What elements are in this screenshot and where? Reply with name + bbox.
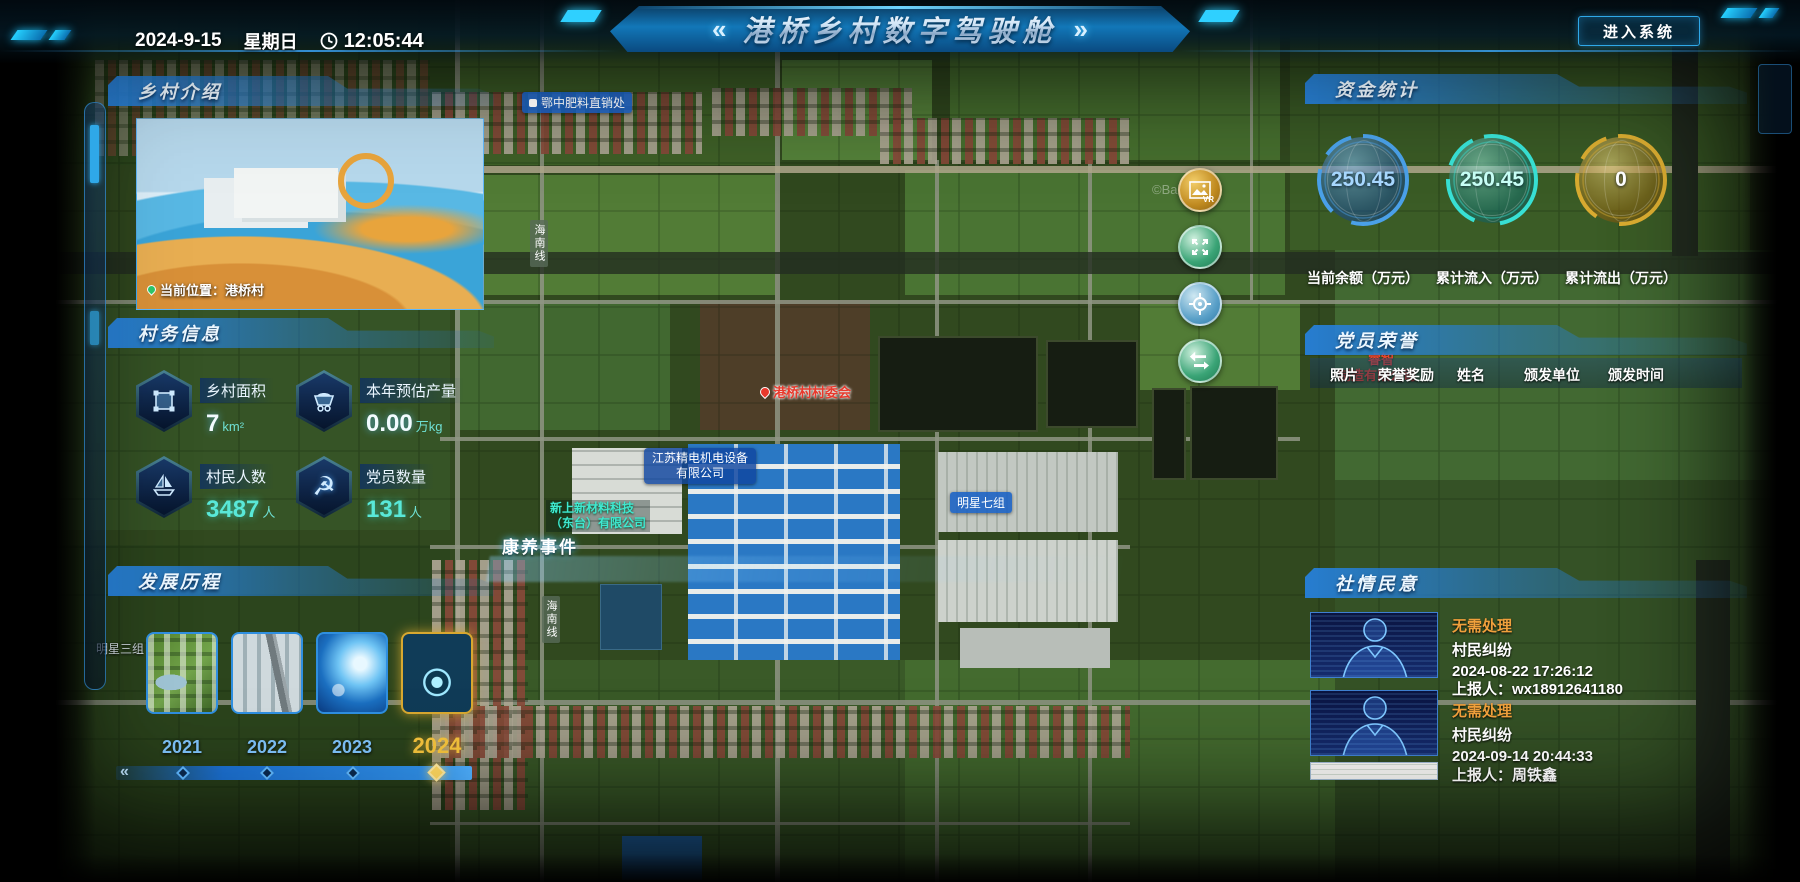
gauge-current-balance: 250.45 [1315, 132, 1411, 228]
event-type: 村民纠纷 [1452, 724, 1742, 745]
sentiment-thumb-3-partial[interactable] [1310, 762, 1438, 780]
banner-line-right [1180, 50, 1800, 52]
timeline-diamond[interactable] [260, 766, 274, 780]
date-text: 2024-9-15 [135, 30, 222, 52]
gauge-label-outflow: 累计流出（万元） [1556, 268, 1686, 288]
map-tag-fertilizer[interactable]: 鄂中肥料直销处 [522, 92, 632, 113]
honors-table-header: 照片 荣誉奖励 姓名 颁发单位 颁发时间 [1310, 358, 1742, 388]
map-tag-group7[interactable]: 明星七组 [950, 492, 1012, 513]
map-tag-company-jiangsu[interactable]: 江苏精电机电设备 有限公司 [644, 448, 756, 484]
sentiment-item-2[interactable]: 无需处理 村民纠纷 2024-09-14 20:44:33 [1452, 700, 1742, 768]
honors-col-award: 荣誉奖励 [1378, 365, 1434, 385]
locate-button[interactable] [1178, 282, 1222, 326]
stat-value: 3487 [206, 496, 259, 523]
stat-label: 村民人数 [200, 464, 274, 489]
corner-slash-icon [48, 30, 71, 40]
datetime-bar: 2024-9-15 星期日 12:05:44 [135, 28, 424, 54]
stat-label: 乡村面积 [200, 378, 274, 403]
stat-unit: km² [222, 419, 244, 434]
cart-icon [296, 370, 352, 432]
gauge-label-inflow: 累计流入（万元） [1427, 268, 1557, 288]
company-name-line: 新上新材料科技 [550, 501, 646, 516]
scanline-overlay [1311, 691, 1437, 755]
vr-label: VR [1203, 195, 1214, 204]
page-title: 港桥乡村数字驾驶舱 [742, 8, 1057, 50]
photo-arch [338, 153, 394, 209]
party-emblem-icon: ☭ [296, 456, 352, 518]
timeline-diamond[interactable] [176, 766, 190, 780]
stat-village-area: 乡村面积 7km² [136, 366, 306, 454]
chevron-right-icon: » [1074, 14, 1088, 45]
honors-col-date: 颁发时间 [1608, 365, 1664, 385]
right-tech-decoration [1758, 64, 1792, 134]
stat-value: 131 [366, 496, 406, 523]
gauge-value: 250.45 [1444, 132, 1540, 228]
stat-value: 7 [206, 410, 219, 437]
dashboard: 鄂中肥料直销处 港桥村村委会 江苏精电机电设备 有限公司 新上新材料科技 （东台… [0, 0, 1800, 882]
enter-system-button[interactable]: 进入系统 [1578, 16, 1700, 46]
scanline-overlay [1311, 613, 1437, 677]
photo-caption: 当前位置：港桥村 [147, 280, 264, 299]
corner-slash-icon [10, 30, 47, 40]
sentiment-thumb-2[interactable] [1310, 690, 1438, 756]
honors-col-photo: 照片 [1330, 365, 1358, 385]
stat-villager-count: 村民人数 3487人 [136, 452, 306, 540]
corner-slash-icon [1720, 8, 1757, 18]
banner-accent-left [560, 10, 601, 22]
swap-arrows-icon [1188, 351, 1212, 371]
vr-image-button[interactable]: VR [1178, 168, 1222, 212]
map-road-label: 海南线 [542, 596, 560, 643]
stat-estimated-output: 本年预估产量 0.00万kg [296, 366, 466, 454]
banner-accent-right [1198, 10, 1239, 22]
stat-unit: 人 [262, 505, 275, 520]
development-thumb-2021[interactable] [146, 632, 218, 714]
map-controls: VR [1178, 168, 1222, 383]
location-pin-icon [145, 283, 158, 296]
sentiment-thumb-1[interactable] [1310, 612, 1438, 678]
map-road-label: 海南线 [530, 220, 548, 267]
red-pin-icon [758, 385, 772, 399]
event-beam [486, 556, 1130, 582]
clock-icon [320, 32, 338, 50]
fullscreen-button[interactable] [1178, 225, 1222, 269]
weekday-text: 星期日 [244, 28, 298, 54]
time-text: 12:05:44 [344, 30, 424, 53]
reporter-2: 上报人：周铁鑫 [1452, 764, 1557, 785]
locate-icon [1188, 292, 1212, 316]
reporter-1: 上报人：wx18912641180 [1452, 678, 1623, 699]
stat-label: 党员数量 [360, 464, 434, 489]
company-name-line: （东台）有限公司 [550, 516, 646, 531]
sentiment-item-1[interactable]: 无需处理 村民纠纷 2024-08-22 17:26:12 [1452, 615, 1742, 683]
company-name-line: 江苏精电机电设备 [652, 451, 748, 466]
stat-unit: 万kg [416, 419, 443, 434]
company-name-line: 有限公司 [652, 466, 748, 481]
timeline-diamond-selected[interactable] [427, 763, 445, 781]
status-badge: 无需处理 [1452, 615, 1742, 636]
gauge-total-outflow: 0 [1573, 132, 1669, 228]
stat-value: 0.00 [366, 410, 413, 437]
year-2023[interactable]: 2023 [316, 737, 388, 758]
event-time: 2024-09-14 20:44:33 [1452, 748, 1742, 765]
expand-icon [1189, 236, 1211, 258]
map-tag-label: 明星七组 [957, 496, 1005, 510]
stat-party-member-count: ☭ 党员数量 131人 [296, 452, 466, 540]
timeline-diamond[interactable] [346, 766, 360, 780]
area-icon [136, 370, 192, 432]
timeline-back-arrow[interactable]: « [120, 763, 129, 781]
gauge-value: 0 [1573, 132, 1669, 228]
honors-col-issuer: 颁发单位 [1524, 365, 1580, 385]
map-marker-label: 港桥村村委会 [773, 385, 851, 400]
development-thumb-2024[interactable] [401, 632, 473, 714]
map-label-company-xinshang[interactable]: 新上新材料科技 （东台）有限公司 [546, 500, 650, 532]
timeline-slider[interactable]: « [116, 766, 472, 780]
development-thumb-2023[interactable] [316, 632, 388, 714]
event-type: 村民纠纷 [1452, 639, 1742, 660]
photo-buildings [234, 168, 338, 217]
stat-label: 本年预估产量 [360, 378, 464, 403]
boat-icon [136, 456, 192, 518]
honors-col-name: 姓名 [1457, 365, 1485, 385]
corner-slash-icon [1758, 8, 1779, 18]
status-badge: 无需处理 [1452, 700, 1742, 721]
stat-unit: 人 [409, 505, 422, 520]
year-2021[interactable]: 2021 [146, 737, 218, 758]
title-plate: « 港桥乡村数字驾驶舱 » [610, 6, 1190, 52]
gauge-value: 250.45 [1315, 132, 1411, 228]
village-photo[interactable]: 当前位置：港桥村 [136, 118, 484, 310]
reset-view-button[interactable] [1178, 339, 1222, 383]
gauge-label-balance: 当前余额（万元） [1298, 268, 1428, 288]
map-tag-label: 鄂中肥料直销处 [541, 96, 625, 110]
health-event-tag[interactable]: 康养事件 [502, 533, 578, 558]
chevron-left-icon: « [712, 14, 726, 45]
development-thumb-2022[interactable] [231, 632, 303, 714]
year-2022[interactable]: 2022 [231, 737, 303, 758]
gauge-total-inflow: 250.45 [1444, 132, 1540, 228]
building-icon [529, 99, 537, 107]
year-2024-selected[interactable]: 2024 [401, 733, 473, 759]
left-tech-decoration [84, 102, 106, 690]
map-marker-village-committee[interactable]: 港桥村村委会 [760, 382, 851, 401]
